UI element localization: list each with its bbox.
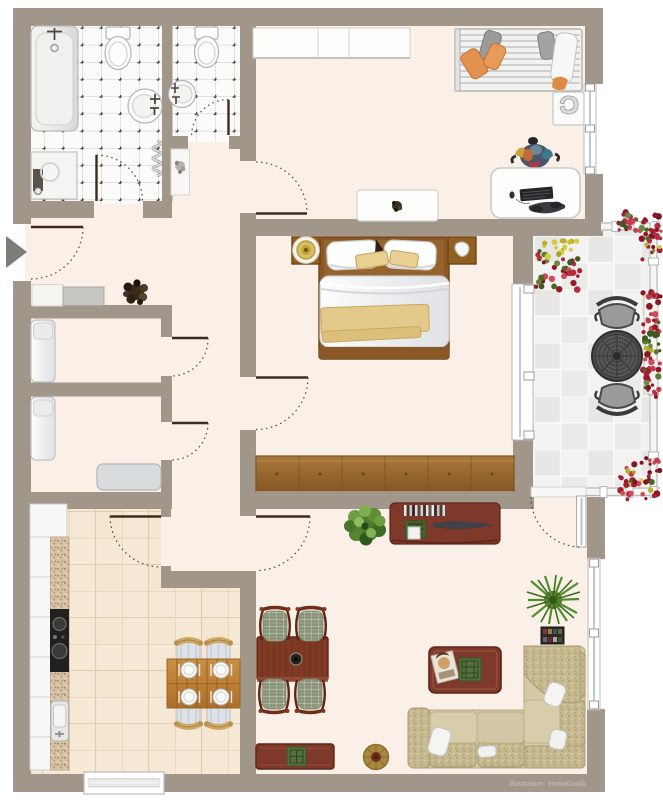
svg-text:Illustration: ImmoGrafik: Illustration: ImmoGrafik	[509, 779, 586, 788]
